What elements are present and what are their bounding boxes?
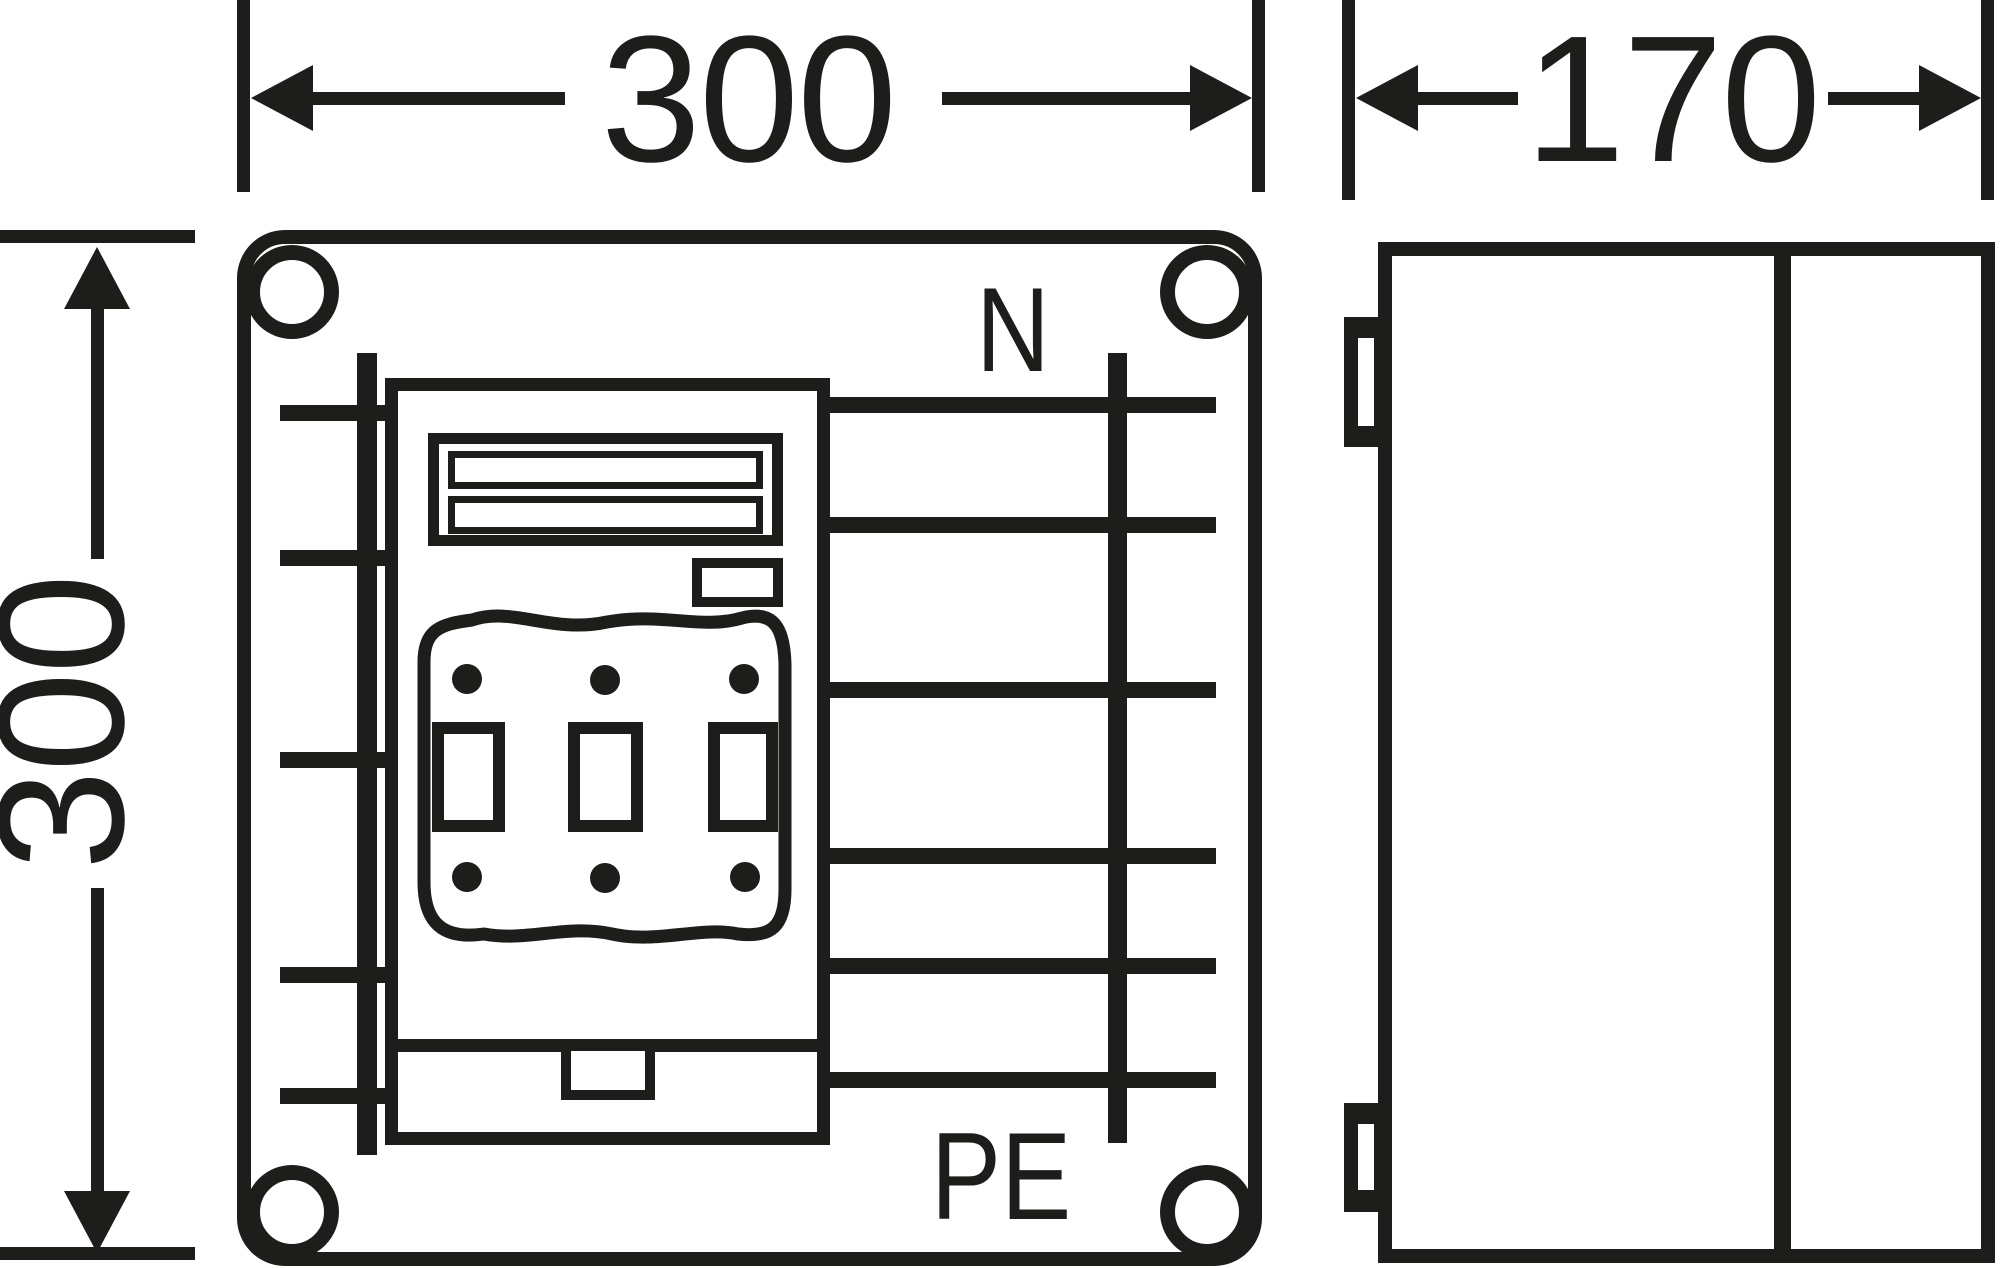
front-width-dimension: 300	[598, 10, 898, 190]
label-plate-row-1	[448, 451, 763, 489]
device-base-clip	[561, 1041, 655, 1100]
mounting-hole-top-left	[245, 245, 339, 339]
busbar-stub-left-3	[280, 752, 392, 768]
mounting-hole-bottom-left	[245, 1165, 339, 1259]
busbar-row-right-4	[823, 848, 1216, 864]
dimension-line-front-height-bottom	[91, 888, 104, 1191]
busbar-vertical-right	[1108, 353, 1127, 1143]
terminal-dot	[452, 664, 482, 694]
dimension-drawing: 300 170 300 N PE	[0, 0, 2000, 1268]
extension-line-front-right	[1252, 0, 1265, 192]
busbar-row-right-1	[823, 397, 1216, 413]
busbar-row-right-5	[823, 958, 1216, 974]
mounting-hole-bottom-right	[1160, 1165, 1254, 1259]
earth-terminal-label: PE	[931, 1115, 1072, 1239]
dimension-line-front-height-top	[91, 306, 104, 559]
terminal-dot	[452, 862, 482, 892]
extension-line-front-top	[0, 230, 195, 243]
neutral-terminal-label: N	[976, 270, 1050, 390]
extension-line-front-left	[237, 0, 250, 192]
arrowhead-down-icon	[64, 1191, 130, 1253]
terminal-dot	[730, 862, 760, 892]
side-depth-dimension: 170	[1522, 10, 1822, 190]
arrowhead-up-icon	[64, 247, 130, 309]
fuse-window-1	[432, 722, 505, 832]
extension-line-side-left	[1342, 0, 1355, 200]
terminal-dot	[590, 863, 620, 893]
dimension-line-front-width-left	[310, 92, 565, 105]
wall-fixing-slot-bottom	[1358, 1124, 1374, 1190]
dimension-line-depth-right	[1828, 92, 1919, 105]
arrowhead-left-icon	[251, 65, 313, 131]
busbar-stub-left-5	[280, 1088, 392, 1104]
busbar-stub-left-4	[280, 967, 392, 983]
arrowhead-left-icon	[1356, 65, 1418, 131]
terminal-dot	[729, 664, 759, 694]
wall-fixing-slot-top	[1358, 338, 1374, 426]
side-view-enclosure-outline	[1378, 242, 1995, 1263]
arrowhead-right-icon	[1190, 65, 1252, 131]
dimension-line-depth-left	[1415, 92, 1518, 105]
fuse-window-2	[568, 722, 643, 832]
label-plate-row-2	[448, 496, 763, 534]
mounting-hole-top-right	[1160, 245, 1254, 339]
busbar-stub-left-2	[280, 550, 392, 566]
fuse-window-3	[708, 722, 778, 832]
side-view-cover-divider	[1774, 242, 1791, 1263]
arrowhead-right-icon	[1919, 65, 1981, 131]
busbar-row-right-3	[823, 682, 1216, 698]
dimension-line-front-width-right	[942, 92, 1190, 105]
busbar-row-right-2	[823, 517, 1216, 533]
front-height-dimension: 300	[0, 576, 152, 870]
busbar-row-right-6	[823, 1072, 1216, 1088]
extension-line-side-right	[1981, 0, 1994, 200]
switch-indicator-window	[692, 558, 783, 607]
busbar-stub-left-1	[280, 405, 392, 421]
terminal-dot	[590, 665, 620, 695]
